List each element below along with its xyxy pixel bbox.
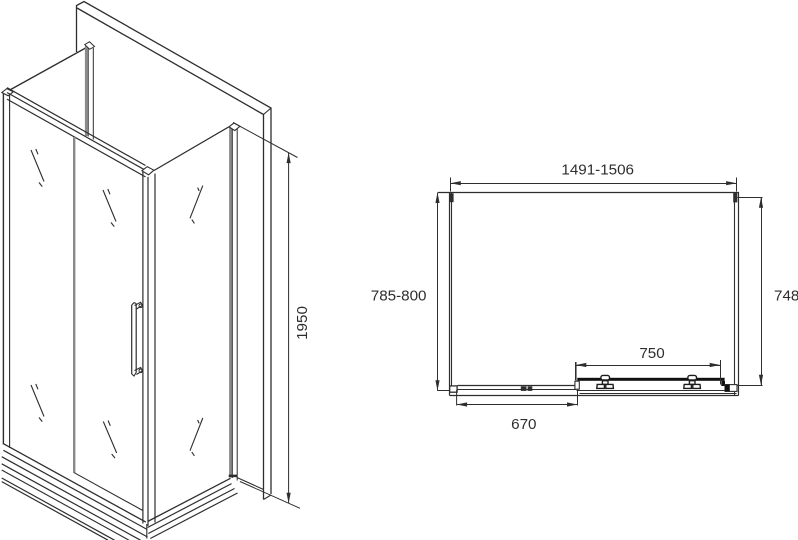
svg-text:748: 748: [774, 288, 798, 305]
svg-text:750: 750: [639, 345, 664, 362]
svg-text:785-800: 785-800: [371, 287, 427, 304]
svg-text:1950: 1950: [294, 306, 311, 340]
svg-text:670: 670: [511, 416, 536, 433]
svg-text:1491-1506: 1491-1506: [561, 161, 634, 178]
